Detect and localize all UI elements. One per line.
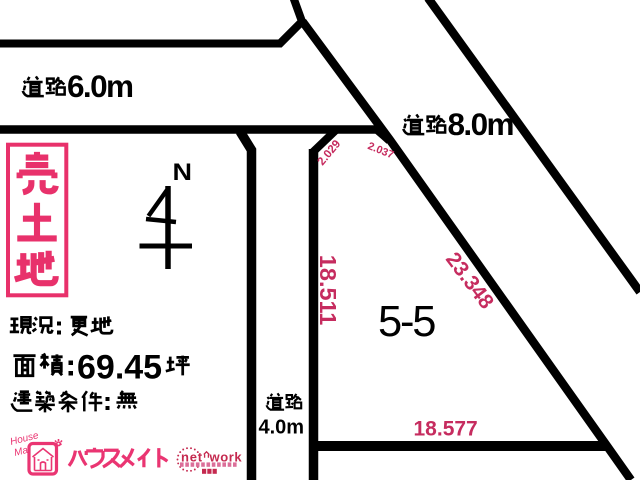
svg-text:work: work [209, 449, 243, 464]
svg-text:18.577: 18.577 [414, 417, 478, 440]
svg-text:4.0m: 4.0m [259, 417, 305, 439]
svg-text:69.45: 69.45 [77, 349, 162, 387]
svg-text:18.511: 18.511 [315, 255, 341, 326]
svg-text:6.0m: 6.0m [67, 68, 133, 104]
svg-text:8.0m: 8.0m [448, 106, 514, 142]
svg-text:N: N [173, 159, 193, 186]
svg-text:net: net [181, 449, 203, 464]
svg-text:5-5: 5-5 [378, 298, 435, 346]
